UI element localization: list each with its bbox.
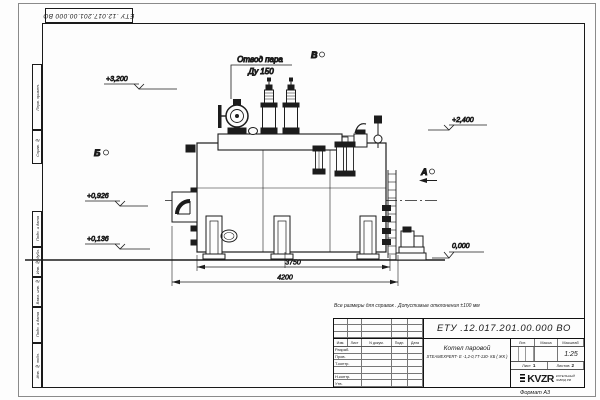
revision-grid <box>334 319 424 338</box>
org-logo-cell: KVZR КОТЕЛЬНЫЙ ЗАВОД РФ <box>511 370 584 388</box>
elevation-0000: 0,000 <box>432 243 484 258</box>
role-nkontr: Н.контр. <box>334 374 362 380</box>
org-line2: ЗАВОД РФ <box>556 379 575 383</box>
col-izm: Изм. <box>334 339 348 346</box>
callout-line2: Ду 150 <box>247 67 274 76</box>
elevation-3200: +3,200 <box>104 76 177 89</box>
svg-text:+0,926: +0,926 <box>87 193 109 200</box>
safety-valve-2 <box>283 78 299 134</box>
steam-outlet-callout: Отвод пара Ду 150 <box>231 55 292 99</box>
svg-text:0,000: 0,000 <box>452 243 470 250</box>
burner <box>172 192 197 222</box>
col-list: Лист <box>348 339 362 346</box>
format-label: Формат А3 <box>520 390 550 396</box>
dome <box>249 128 258 135</box>
sheets-cell: Листов2 <box>548 362 585 369</box>
logo-text: KVZR <box>527 373 554 385</box>
col-podp: Подп. <box>392 339 408 346</box>
svg-text:+0,136: +0,136 <box>87 236 109 243</box>
feed-pump <box>396 227 426 260</box>
logo-bars-icon <box>520 374 525 383</box>
product-model: STEAMEXPERT- E -1,2-0,7Т-130- КБ ( ЖК ) <box>426 354 507 359</box>
drawing-sheet: ЕТУ .12.017.201.00.000 ВО Перв. примен. … <box>0 0 600 400</box>
reference-note: Все размеры для справок . Допустимые отк… <box>334 303 590 309</box>
titleblock-doc-number: ЕТУ .12.017.201.00.000 ВО <box>424 319 584 338</box>
safety-valve-1 <box>261 78 277 134</box>
dimension-4200-label: 4200 <box>277 275 293 282</box>
main-steam-valve <box>218 99 248 134</box>
svg-text:Б: Б <box>94 148 101 158</box>
dimension-3750-label: 3750 <box>285 260 301 267</box>
view-marker-v: В <box>311 50 325 60</box>
svg-text:В: В <box>311 50 318 60</box>
svg-text:+2,400: +2,400 <box>452 117 474 124</box>
steam-manifold <box>218 134 348 150</box>
col-doc: N докум. <box>362 339 392 346</box>
role-utv: Утв. <box>334 380 362 386</box>
view-marker-b: Б <box>94 148 109 158</box>
sheet-cell: Лист1 <box>511 362 548 369</box>
header-lit: Лит. <box>511 339 535 346</box>
callout-line1: Отвод пара <box>237 55 283 64</box>
header-mass: Масса <box>535 339 558 346</box>
col-data: Дата <box>408 339 423 346</box>
lit-cells <box>511 347 535 361</box>
elevation-0926: +0,926 <box>85 193 148 206</box>
view-marker-a: А <box>419 167 437 183</box>
signature-table: Изм. Лист N докум. Подп. Дата Разраб. Пр… <box>334 339 424 388</box>
svg-text:+3,200: +3,200 <box>106 76 128 83</box>
role-razrab: Разраб. <box>334 347 362 353</box>
svg-text:А: А <box>420 167 428 177</box>
role-prov: Пров. <box>334 354 362 360</box>
title-block: ЕТУ .12.017.201.00.000 ВО Изм. Лист N до… <box>333 318 585 388</box>
elevation-0136: +0,136 <box>85 236 150 249</box>
lever-valve <box>354 124 367 147</box>
product-name: Котел паровой <box>444 345 491 352</box>
role-tkontr: Т.контр. <box>334 360 362 366</box>
role-empty <box>334 367 362 373</box>
scale-value: 1:25 <box>558 347 584 361</box>
elevation-2400: +2,400 <box>428 117 487 130</box>
mass-cell <box>535 347 558 361</box>
header-scale: Масштаб <box>558 339 584 346</box>
